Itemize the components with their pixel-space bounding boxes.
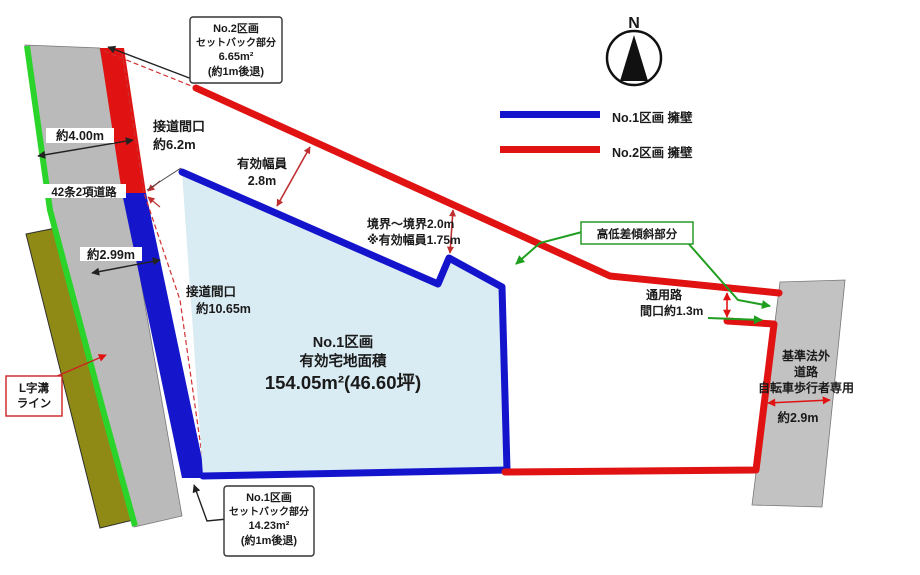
- compass-north-label: N: [628, 15, 640, 32]
- rear-road-line2: 道路: [794, 364, 819, 379]
- legend-no2-label: No.2区画 擁壁: [612, 145, 693, 160]
- road-width-label: 約4.00m: [46, 128, 114, 143]
- svg-text:約2.99m: 約2.99m: [87, 247, 135, 262]
- callout-no1-line2: セットバック部分: [229, 505, 309, 518]
- site-plan-page: No.2区画 セットバック部分 6.65m² (約1m後退) No.1区画 セッ…: [0, 0, 920, 575]
- svg-text:42条2項道路: 42条2項道路: [51, 185, 117, 199]
- frontage-no2-line1: 接道間口: [153, 119, 205, 134]
- slope-label: 高低差傾斜部分: [597, 227, 678, 241]
- boundary-note-line1: 境界～境界2.0m: [367, 216, 454, 231]
- frontage-no2-line2: 約6.2m: [153, 137, 196, 152]
- l-gutter-line1: L字溝: [19, 381, 50, 395]
- effective-width-line2: 2.8m: [248, 174, 277, 188]
- legend: No.1区画 擁壁 No.2区画 擁壁: [500, 110, 693, 160]
- compass-icon: N: [607, 15, 661, 85]
- effective-width-line1: 有効幅員: [237, 156, 288, 171]
- site-plan-drawing: No.2区画 セットバック部分 6.65m² (約1m後退) No.1区画 セッ…: [0, 0, 920, 575]
- callout-no1-line4: (約1m後退): [241, 533, 298, 547]
- frontage-no2-tick-lower: [148, 197, 160, 207]
- legend-no1-label: No.1区画 擁壁: [612, 110, 693, 125]
- frontage-no2-leader: [147, 168, 181, 190]
- callout-no2-line3: 6.65m²: [219, 51, 254, 63]
- parcel-no1-line1: No.1区画: [313, 334, 373, 351]
- legend-no2-swatch: [500, 146, 600, 153]
- callout-no2-line1: No.2区画: [213, 22, 259, 35]
- svg-text:約4.00m: 約4.00m: [56, 128, 104, 143]
- passage-line2: 間口約1.3m: [640, 303, 703, 318]
- effective-width-arrow: [277, 147, 310, 206]
- callout-no2-setback: No.2区画 セットバック部分 6.65m² (約1m後退): [190, 17, 282, 83]
- callout-slope: 高低差傾斜部分: [581, 222, 693, 244]
- frontage-no1-line2: 約10.65m: [196, 301, 251, 316]
- frontage-no1-line1: 接道間口: [186, 284, 236, 299]
- callout-l-gutter: L字溝 ライン: [6, 376, 62, 416]
- boundary-note-line2: ※有効幅員1.75m: [367, 232, 461, 247]
- slope-leader-right2: [708, 318, 762, 320]
- parcel-no2-wall-lower: [505, 321, 774, 472]
- rear-road-line1: 基準法外: [781, 348, 830, 363]
- rear-road-line3: 自転車歩行者専用: [758, 380, 854, 395]
- no1-setback-leader: [194, 485, 227, 521]
- callout-no1-line1: No.1区画: [246, 491, 292, 504]
- parcel-no1-line2: 有効宅地面積: [300, 352, 387, 370]
- callout-no1-line3: 14.23m²: [249, 520, 290, 532]
- callout-no2-line4: (約1m後退): [208, 64, 265, 78]
- callout-no1-setback: No.1区画 セットバック部分 14.23m² (約1m後退): [224, 486, 314, 556]
- slope-leader-right: [688, 243, 770, 306]
- parcel-no1-line3: 154.05m²(46.60坪): [265, 372, 421, 393]
- parcel-no1-area: [182, 172, 507, 476]
- road-type-label: 42条2項道路: [42, 184, 126, 199]
- side-width-label: 約2.99m: [80, 247, 142, 262]
- legend-no1-swatch: [500, 111, 600, 118]
- rear-road-width-label: 約2.9m: [778, 410, 819, 425]
- l-gutter-line2: ライン: [17, 397, 52, 410]
- passage-line1: 通用路: [646, 287, 683, 302]
- callout-no2-line2: セットバック部分: [196, 36, 276, 49]
